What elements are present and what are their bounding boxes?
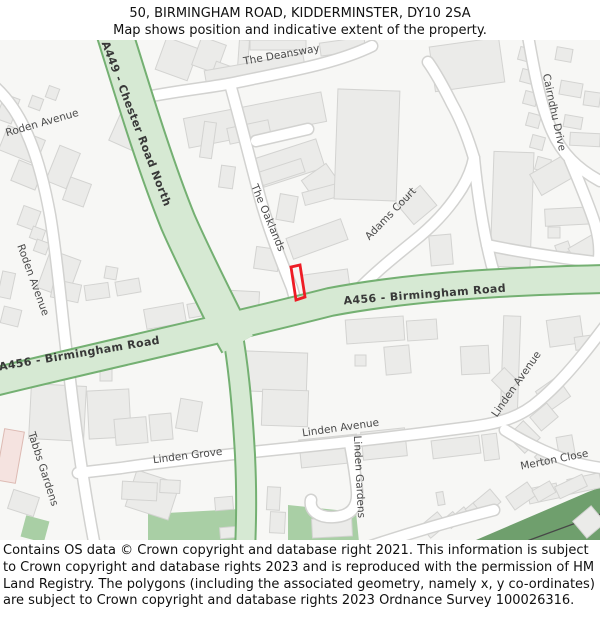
pink-building <box>0 429 24 484</box>
map-header: 50, BIRMINGHAM ROAD, KIDDERMINSTER, DY10… <box>0 0 600 40</box>
property-map-page: 50, BIRMINGHAM ROAD, KIDDERMINSTER, DY10… <box>0 0 600 625</box>
copyright-text: Contains OS data © Crown copyright and d… <box>0 540 600 610</box>
map-svg: A449 - Chester Road North A456 - Birming… <box>0 40 600 540</box>
map-canvas: A449 - Chester Road North A456 - Birming… <box>0 40 600 540</box>
map-subtitle: Map shows position and indicative extent… <box>0 22 600 39</box>
copyright-notice: Contains OS data © Crown copyright and d… <box>0 540 600 625</box>
property-address-title: 50, BIRMINGHAM ROAD, KIDDERMINSTER, DY10… <box>0 0 600 22</box>
